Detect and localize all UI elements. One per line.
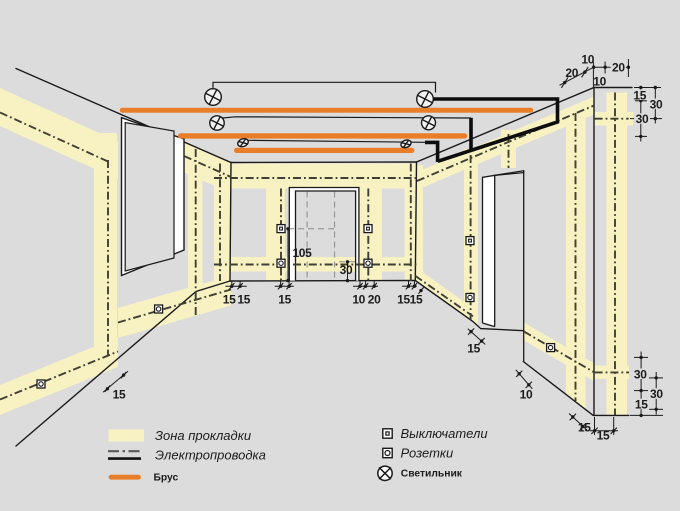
svg-text:30: 30	[650, 97, 663, 111]
svg-text:15: 15	[467, 341, 480, 355]
svg-text:Светильник: Светильник	[401, 469, 463, 480]
svg-text:30: 30	[340, 263, 353, 277]
svg-text:15: 15	[237, 293, 250, 307]
svg-text:15: 15	[578, 420, 591, 434]
svg-text:10: 10	[352, 293, 365, 307]
svg-text:15: 15	[223, 293, 236, 307]
svg-text:20: 20	[612, 60, 625, 74]
svg-text:Розетки: Розетки	[401, 446, 454, 461]
svg-text:20: 20	[565, 66, 578, 80]
svg-text:15: 15	[635, 398, 648, 412]
svg-text:30: 30	[650, 387, 663, 401]
svg-text:15: 15	[397, 293, 410, 307]
svg-text:15: 15	[113, 387, 126, 401]
svg-text:10: 10	[593, 75, 606, 89]
svg-text:Брус: Брус	[154, 473, 179, 484]
svg-text:105: 105	[292, 246, 312, 260]
svg-text:30: 30	[636, 112, 649, 126]
svg-text:15: 15	[410, 293, 423, 307]
svg-text:Выключатели: Выключатели	[401, 426, 488, 441]
svg-text:10: 10	[581, 52, 594, 66]
svg-text:15: 15	[278, 293, 291, 307]
svg-text:15: 15	[597, 429, 610, 443]
svg-text:Электропроводка: Электропроводка	[155, 448, 266, 463]
svg-text:10: 10	[520, 387, 533, 401]
svg-text:15: 15	[633, 88, 646, 102]
svg-text:20: 20	[368, 293, 381, 307]
svg-text:30: 30	[634, 367, 647, 381]
svg-text:Зона прокладки: Зона прокладки	[155, 428, 251, 443]
